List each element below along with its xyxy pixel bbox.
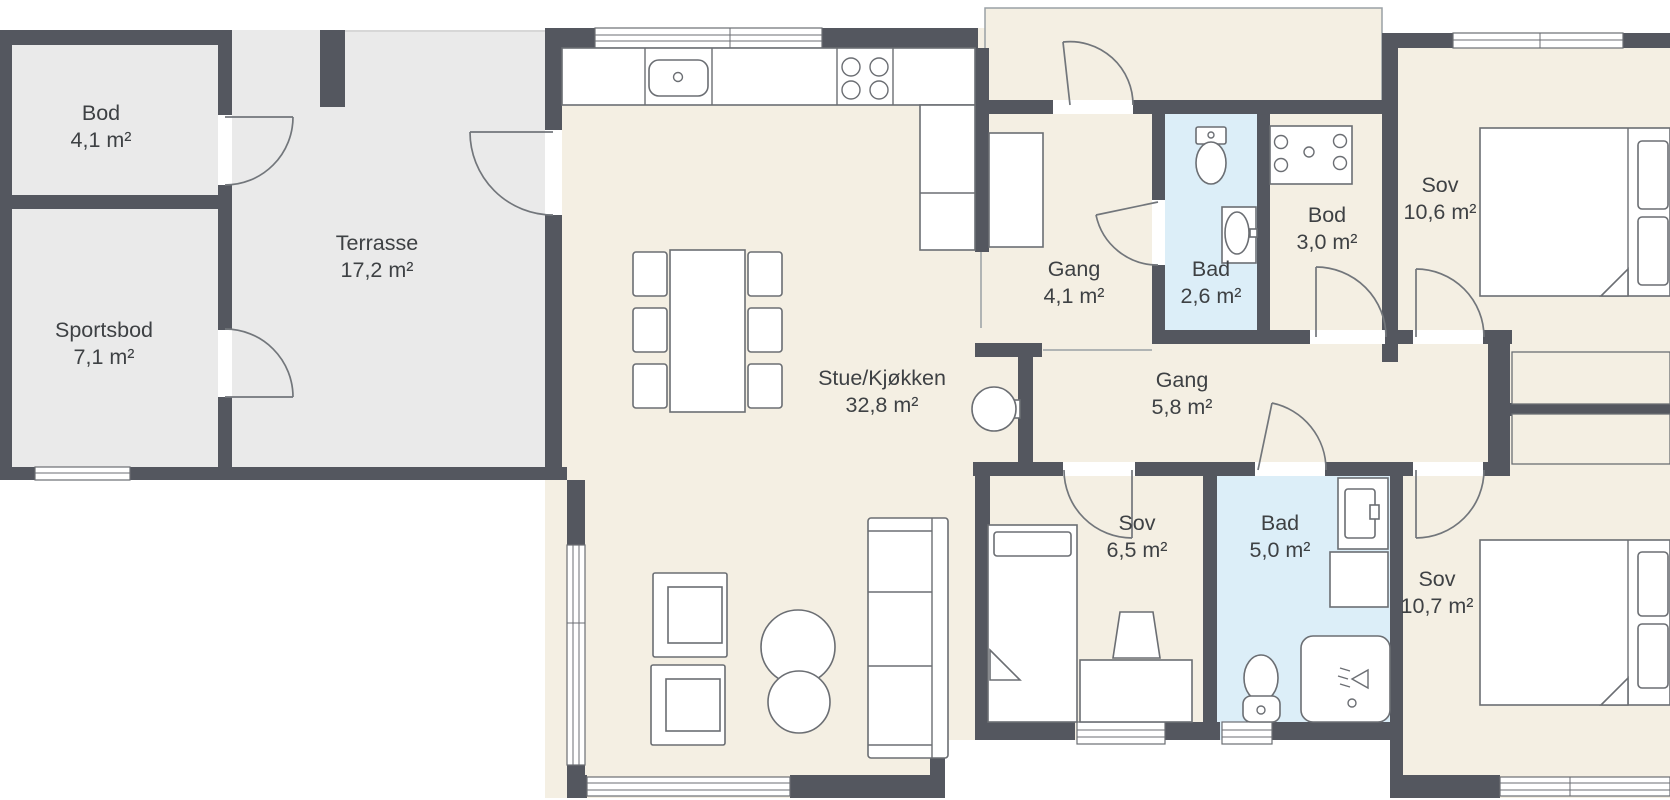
bathroom-cabinet (1330, 552, 1388, 607)
window-kitchen (595, 28, 822, 48)
pillow (1638, 552, 1668, 616)
kitchen-counter-side (920, 105, 975, 250)
wood-stove-icon (972, 387, 1016, 431)
room-label-gang41: Gang (1048, 257, 1101, 281)
room-area-gang58: 5,8 m² (1152, 395, 1213, 419)
room-area-gang41: 4,1 m² (1044, 284, 1105, 308)
bed-sov107 (1480, 540, 1670, 705)
room-area-sov65: 6,5 m² (1107, 538, 1168, 562)
room-area-terrasse: 17,2 m² (341, 258, 414, 282)
desk-chair (1113, 612, 1160, 658)
sofa (868, 518, 948, 758)
window-stue-left (567, 545, 585, 765)
floor-plan: Bod 4,1 m² Sportsbod 7,1 m² Terrasse 17,… (0, 0, 1670, 800)
room-area-bad26: 2,6 m² (1181, 284, 1242, 308)
room-label-terrasse: Terrasse (336, 231, 418, 255)
room-label-bad50: Bad (1261, 511, 1299, 535)
room-area-sportsbod: 7,1 m² (74, 345, 135, 369)
armchair (653, 573, 727, 657)
room-label-bod41: Bod (82, 101, 120, 125)
room-label-gang58: Gang (1156, 368, 1209, 392)
window-bad50-bottom (1222, 722, 1272, 744)
window-sov106 (1453, 33, 1623, 48)
room-area-sov107: 10,7 m² (1401, 594, 1474, 618)
room-label-sov107: Sov (1418, 567, 1455, 591)
room-area-bod41: 4,1 m² (71, 128, 132, 152)
kitchen-sink-icon (649, 60, 708, 96)
room-outbuilding-terrace-floor (0, 30, 562, 480)
room-label-sov106: Sov (1421, 173, 1458, 197)
dining-chair (633, 364, 667, 408)
room-area-stue: 32,8 m² (846, 393, 919, 417)
floor-areas (0, 0, 1670, 800)
floor-plan-canvas: Bod 4,1 m² Sportsbod 7,1 m² Terrasse 17,… (0, 0, 1670, 800)
toilet-icon (1243, 655, 1280, 722)
room-label-bad26: Bad (1192, 257, 1230, 281)
toilet-icon (1196, 127, 1226, 184)
bed-sov106 (1480, 128, 1670, 296)
window-sportsbod (35, 467, 130, 480)
pillow (994, 532, 1071, 556)
washer-cabinet-icon (1338, 478, 1388, 549)
wardrobe-sov106 (1512, 352, 1670, 404)
room-label-sportsbod: Sportsbod (55, 318, 153, 342)
window-sov65-bottom (1077, 722, 1165, 744)
laundry-counter (1270, 126, 1352, 184)
outside-notch (945, 740, 1390, 800)
dining-chair (633, 308, 667, 352)
dining-chair (748, 252, 782, 296)
desk (1080, 660, 1192, 722)
dining-set (633, 250, 782, 412)
window-stue-bottom (587, 777, 790, 796)
room-area-bod30: 3,0 m² (1297, 230, 1358, 254)
coffee-table (768, 671, 830, 733)
room-area-sov106: 10,6 m² (1404, 200, 1477, 224)
wardrobe-sov107 (1512, 414, 1670, 464)
room-label-stue: Stue/Kjøkken (818, 366, 946, 390)
dining-chair (633, 252, 667, 296)
pillow (1638, 624, 1668, 688)
kitchen-counter (562, 48, 975, 105)
hall-closet (989, 133, 1043, 247)
room-label-bod30: Bod (1308, 203, 1346, 227)
shower-icon (1301, 636, 1390, 722)
window-sov107-bottom (1500, 777, 1670, 796)
entry-porch (985, 8, 1382, 105)
dining-chair (748, 308, 782, 352)
room-area-bad50: 5,0 m² (1250, 538, 1311, 562)
dining-table (670, 250, 745, 412)
pillow (1638, 217, 1668, 285)
pillow (1638, 141, 1668, 209)
dining-chair (748, 364, 782, 408)
single-bed (988, 525, 1077, 722)
room-label-sov65: Sov (1118, 511, 1155, 535)
armchair (651, 665, 725, 745)
bathroom-sink-icon (1222, 207, 1257, 263)
